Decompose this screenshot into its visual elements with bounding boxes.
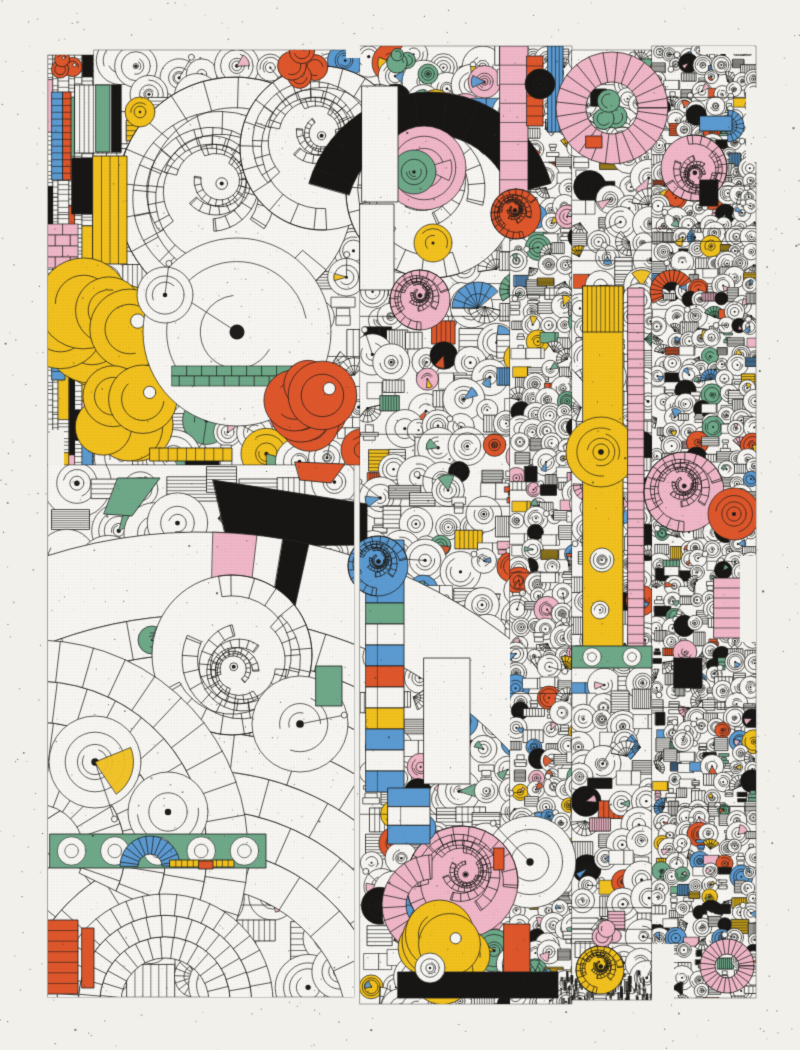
artwork-frame	[0, 0, 800, 1050]
generative-artwork-canvas	[0, 0, 800, 1050]
